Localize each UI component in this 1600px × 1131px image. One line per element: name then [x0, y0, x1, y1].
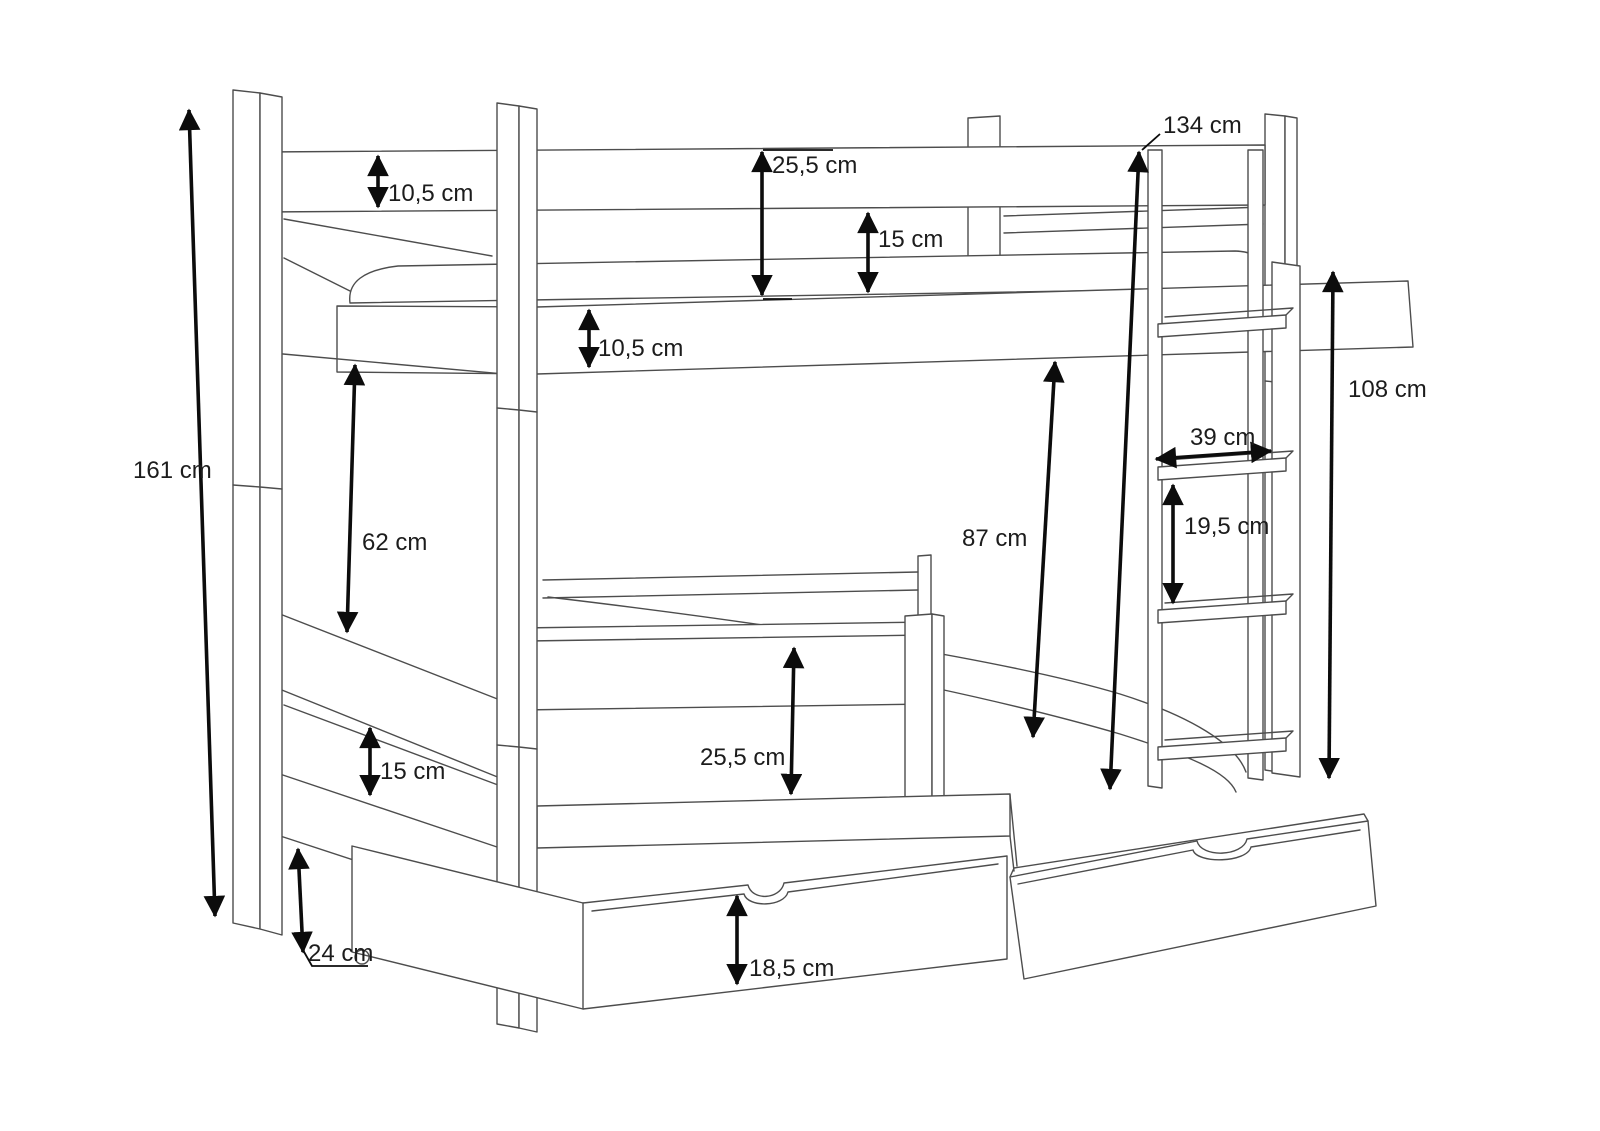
label-ladder-height: 108 cm	[1348, 376, 1427, 403]
bed-structure	[233, 90, 1413, 1032]
label-rail-to-base: 134 cm	[1163, 112, 1242, 139]
label-upper-frame-rail: 10,5 cm	[598, 335, 683, 362]
bunk-bed-dimension-diagram: 161 cm 10,5 cm 25,5 cm 15 cm 10,5 cm 134…	[0, 0, 1600, 1131]
arrow-24	[298, 849, 303, 952]
label-rung-spacing: 19,5 cm	[1184, 513, 1269, 540]
label-drawer-height: 18,5 cm	[749, 955, 834, 982]
diagram-canvas: 161 cm 10,5 cm 25,5 cm 15 cm 10,5 cm 134…	[0, 0, 1600, 1131]
label-upper-top-rail: 10,5 cm	[388, 180, 473, 207]
lower-far-rail	[543, 572, 918, 598]
left-drawer	[352, 846, 1007, 1009]
bottom-front-rail	[537, 794, 1010, 848]
arrow-62	[347, 365, 355, 632]
label-upper-to-lower: 62 cm	[362, 529, 427, 556]
label-total-height: 161 cm	[133, 457, 212, 484]
label-upper-gap: 15 cm	[878, 226, 943, 253]
base-corner-edges	[1010, 795, 1017, 871]
lower-head-rail-upper	[262, 607, 500, 778]
back-left-post	[233, 90, 282, 935]
arrow-161	[189, 110, 215, 916]
label-lower-gap: 15 cm	[380, 758, 445, 785]
ladder-handrail	[1272, 262, 1300, 777]
right-drawer	[1010, 814, 1376, 979]
lower-far-guard-post	[918, 555, 931, 616]
label-floor-clearance: 24 cm	[308, 940, 373, 967]
lower-guard-rail	[520, 614, 944, 801]
arrow-134	[1110, 152, 1139, 789]
label-upper-rail-to-frame: 25,5 cm	[772, 152, 857, 179]
upper-far-rail	[1004, 207, 1263, 233]
label-lower-guard: 25,5 cm	[700, 744, 785, 771]
label-bunk-clearance: 87 cm	[962, 525, 1027, 552]
arrow-87	[1033, 362, 1055, 737]
label-ladder-width: 39 cm	[1190, 424, 1255, 451]
